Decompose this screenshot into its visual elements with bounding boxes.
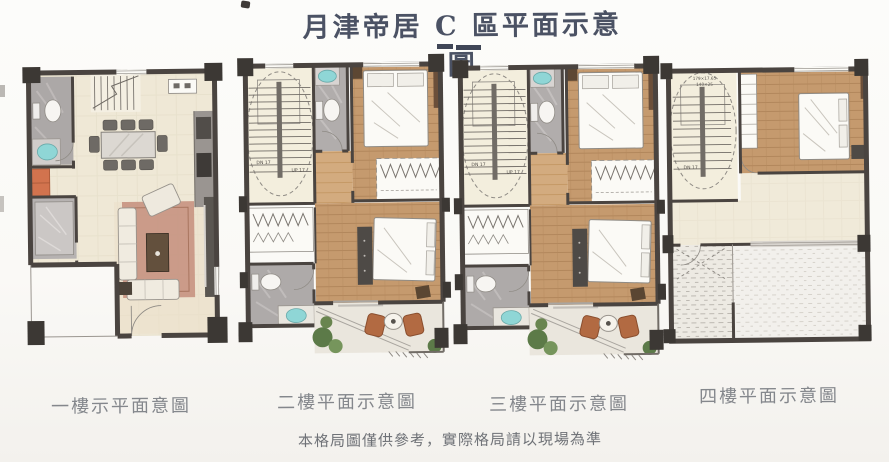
stair-down-label: DN 17 bbox=[683, 165, 697, 171]
windows bbox=[794, 67, 848, 73]
cabinet-orange bbox=[32, 169, 50, 197]
dining-chair bbox=[157, 135, 167, 151]
scan-artifact bbox=[241, 0, 251, 8]
floor-plan-2: DN 17 UP 17 bbox=[235, 52, 454, 372]
stair-zone: 179×17.65 140×25 DN 17 bbox=[668, 70, 738, 201]
terrace-left bbox=[670, 244, 733, 341]
stairs bbox=[90, 74, 140, 113]
appliance bbox=[196, 153, 211, 177]
scanned-floor-plan-sheet: 月津帝居 C 區平面示意圖 bbox=[0, 0, 889, 462]
corner-table bbox=[119, 282, 132, 295]
stair-dim-1: 179×17.65 bbox=[693, 76, 717, 81]
floor-plan-graphic bbox=[235, 54, 452, 361]
stair-up-label: UP 17 bbox=[291, 167, 305, 173]
floor-plan-4: 179×17.65 140×25 DN 17 bbox=[660, 57, 877, 355]
bathroom bbox=[30, 77, 73, 166]
dining-chair bbox=[139, 160, 153, 170]
dining-chair bbox=[103, 160, 117, 170]
nightstand bbox=[851, 145, 864, 159]
dining-chair bbox=[121, 160, 135, 170]
stair-down-label: DN 17 bbox=[471, 162, 485, 168]
stair-dim-2: 140×25 bbox=[696, 82, 713, 87]
toilet bbox=[45, 100, 61, 122]
floor-plan-4-svg: 179×17.65 140×25 DN 17 bbox=[660, 57, 877, 350]
terrace-right bbox=[732, 240, 868, 341]
title-underline bbox=[437, 44, 453, 49]
entry-label-box bbox=[168, 79, 196, 93]
dining-chair bbox=[89, 136, 99, 152]
stair-down-label: DN 17 bbox=[256, 160, 270, 166]
appliance bbox=[196, 117, 211, 139]
sink bbox=[37, 144, 57, 160]
floor-plan-3: DN 17 UP 17 bbox=[450, 54, 669, 374]
floor-plan-1-svg bbox=[16, 55, 230, 350]
storage-room bbox=[32, 197, 77, 260]
dining-chair bbox=[121, 120, 135, 130]
title-underline bbox=[456, 45, 481, 50]
floor-plan-1 bbox=[16, 55, 230, 355]
stair-up-label: UP 17 bbox=[506, 169, 520, 175]
floor-plan-graphic bbox=[450, 56, 667, 363]
scan-artifact bbox=[0, 196, 4, 212]
dining-chair bbox=[139, 120, 153, 130]
closet bbox=[740, 74, 757, 148]
floor-plan-2-svg: DN 17 UP 17 bbox=[235, 52, 454, 367]
floor-label-4: 四樓平面示意圖 bbox=[684, 381, 854, 408]
bedroom bbox=[739, 69, 866, 174]
sofa bbox=[127, 279, 179, 300]
kitchen bbox=[194, 111, 214, 207]
floor-label-3: 三樓平面示意圖 bbox=[474, 389, 644, 416]
floor-label-2: 二樓平面示意圖 bbox=[262, 387, 432, 414]
dining-chair bbox=[103, 120, 117, 130]
floor-label-1: 一樓示平面意圖 bbox=[36, 391, 206, 418]
disclaimer-text: 本格局圖僅供參考，實際格局請以現場為準 bbox=[235, 427, 665, 451]
scan-artifact bbox=[0, 85, 5, 97]
floor-plan-3-svg: DN 17 UP 17 bbox=[450, 54, 669, 369]
